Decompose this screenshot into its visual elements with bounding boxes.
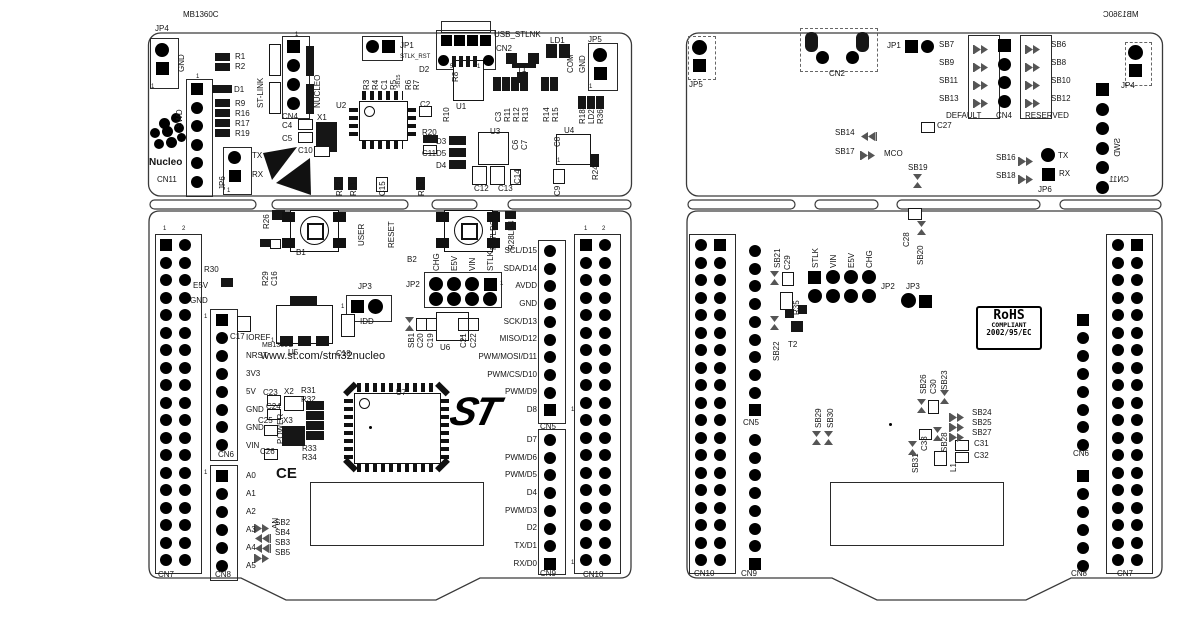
label-r17: R17	[235, 120, 250, 128]
component	[553, 169, 565, 184]
header-pin	[1112, 257, 1124, 269]
label-tx: TX	[252, 152, 262, 160]
label-gnd: GND	[246, 406, 264, 414]
component	[298, 132, 313, 143]
component	[541, 77, 549, 91]
header-pin	[1112, 309, 1124, 321]
breakaway-slot	[815, 200, 878, 209]
label-u6: U6	[440, 344, 450, 352]
label-r18: R18	[579, 109, 587, 124]
label-vin: VIN	[469, 258, 477, 271]
header-pin	[714, 379, 726, 391]
header-pin	[714, 449, 726, 461]
solder-bridge	[940, 389, 949, 410]
square-pad	[441, 35, 452, 46]
header-pin	[544, 245, 556, 257]
component	[306, 411, 324, 420]
board-title-front: MB1360C	[183, 11, 219, 19]
label-c17: C17	[230, 333, 245, 341]
round-pad	[846, 51, 859, 64]
label-r12: R12	[513, 107, 521, 122]
header-pin	[580, 309, 592, 321]
label-sb8: SB8	[1051, 59, 1066, 67]
round-pad	[366, 40, 379, 53]
header-pin	[544, 505, 556, 517]
component	[934, 451, 947, 466]
label-stlk: STLK	[487, 251, 495, 271]
label-cn4: CN4	[282, 113, 298, 121]
header-pin	[544, 316, 556, 328]
solder-bridge	[812, 430, 821, 451]
header-pin	[749, 369, 761, 381]
header-pin	[179, 537, 191, 549]
header-pin	[191, 102, 203, 114]
component	[221, 278, 233, 287]
component	[955, 452, 969, 463]
header-pin	[1077, 332, 1089, 344]
header-pin	[160, 257, 172, 269]
header-pin	[179, 257, 191, 269]
label-sb17: SB17	[835, 148, 855, 156]
label-r20: R20	[422, 129, 437, 137]
label-c7: C7	[521, 140, 529, 150]
pin1-square-pad	[544, 404, 556, 416]
label-c12: C12	[474, 185, 489, 193]
header-pin	[287, 97, 300, 110]
chip-u2	[349, 91, 416, 149]
pin1-square-pad	[1096, 83, 1109, 96]
label-vin: VIN	[246, 442, 259, 450]
rohs-badge: RoHSCOMPLIANT2002/95/EC	[976, 306, 1042, 350]
label-gnd: GND	[519, 300, 537, 308]
component	[908, 208, 922, 220]
label-c20: C20	[417, 333, 425, 348]
label-jp2: JP2	[406, 281, 420, 289]
round-pad	[429, 277, 443, 291]
round-pad	[465, 292, 479, 306]
component	[449, 148, 466, 157]
header-pin	[714, 292, 726, 304]
header-pin	[695, 257, 707, 269]
component	[237, 316, 251, 332]
header-pin	[1131, 467, 1143, 479]
header-pin	[1112, 274, 1124, 286]
breakaway-slot	[688, 200, 795, 209]
round-pad	[844, 289, 858, 303]
header-pin	[599, 379, 611, 391]
header-pin	[599, 414, 611, 426]
header-pin	[1112, 362, 1124, 374]
label-d5: D5	[436, 150, 446, 158]
connector-outline	[310, 482, 484, 546]
header-pin	[179, 502, 191, 514]
header-pin	[216, 332, 228, 344]
label-r29: R29	[262, 271, 270, 286]
label-sb1: SB1	[408, 333, 416, 348]
round-pad	[465, 277, 479, 291]
label-jp6: JP6	[219, 176, 227, 190]
solder-bridge	[860, 147, 877, 165]
label-c29: C29	[784, 255, 792, 270]
label-r34: R34	[302, 454, 317, 462]
header-pin	[695, 239, 707, 251]
label-r11: R11	[504, 108, 512, 122]
header-pin	[1112, 519, 1124, 531]
label-jp4: JP4	[155, 25, 169, 33]
label-x2: X2	[284, 388, 294, 396]
pin1-square-pad	[1077, 470, 1089, 482]
label-r30: R30	[204, 266, 219, 274]
label-c32: C32	[974, 452, 989, 460]
label-ioref: IOREF	[246, 334, 270, 342]
header-pin	[179, 519, 191, 531]
header-pin	[1077, 386, 1089, 398]
header-pin	[714, 414, 726, 426]
header-pin	[1077, 350, 1089, 362]
round-pad	[826, 289, 840, 303]
label-e5v: E5V	[848, 253, 856, 268]
label-1: 1	[151, 84, 154, 90]
header-pin	[544, 523, 556, 535]
label-d3: D3	[436, 138, 446, 146]
label-jp1: JP1	[887, 42, 901, 50]
header-pin	[160, 519, 172, 531]
header-pin	[160, 344, 172, 356]
label-c30: C30	[930, 379, 938, 394]
header-pin	[695, 327, 707, 339]
breakaway-slot	[150, 200, 256, 209]
header-pin	[714, 484, 726, 496]
header-pin	[1077, 488, 1089, 500]
component	[928, 400, 939, 414]
header-pin	[580, 432, 592, 444]
header-pin	[216, 524, 228, 536]
header-pin	[714, 362, 726, 374]
header-pin	[160, 397, 172, 409]
label-r23: R23	[418, 181, 426, 196]
solder-bridge	[913, 173, 922, 194]
label-cn2: CN2	[829, 70, 845, 78]
header-pin	[1131, 344, 1143, 356]
round-pad	[826, 270, 840, 284]
header-pin	[749, 434, 761, 446]
label-t1: T1	[517, 66, 526, 74]
round-pad	[844, 270, 858, 284]
label-c31: C31	[974, 440, 989, 448]
label-c4: C4	[282, 122, 292, 130]
header-pin	[216, 488, 228, 500]
header-pin	[1077, 368, 1089, 380]
label-ld2: LD2	[588, 109, 596, 124]
label-ld1: LD1	[550, 37, 565, 45]
header-pin	[599, 362, 611, 374]
header-pin	[216, 506, 228, 518]
label-x1: X1	[317, 114, 327, 122]
header-pin	[1112, 414, 1124, 426]
label-chg: CHG	[433, 253, 441, 271]
header-pin	[580, 274, 592, 286]
header-pin	[599, 309, 611, 321]
label-1: 1	[589, 84, 592, 90]
solder-bridge	[770, 270, 779, 291]
label-r22: R22	[336, 181, 344, 196]
label-an: AN	[272, 518, 280, 529]
header-pin	[580, 327, 592, 339]
header-pin	[695, 362, 707, 374]
header-pin	[695, 554, 707, 566]
website-url: www.st.com/stm32nucleo	[261, 351, 385, 362]
label-sb24: SB24	[972, 409, 992, 417]
header-pin	[544, 369, 556, 381]
pin1-square-pad	[216, 470, 228, 482]
header-pin	[695, 274, 707, 286]
label-reserved: RESERVED	[1025, 112, 1069, 120]
solder-bridge	[1018, 171, 1035, 189]
header-pin	[695, 449, 707, 461]
round-pad	[862, 270, 876, 284]
breakaway-slot	[1060, 200, 1161, 209]
label-r27ld3: R27LD3	[490, 221, 498, 250]
label-jp5: JP5	[588, 36, 602, 44]
label-sb13: SB13	[939, 95, 959, 103]
square-pad	[905, 40, 918, 53]
component	[298, 336, 311, 346]
label-a4: A4	[246, 544, 256, 552]
label-cn6: CN6	[1073, 450, 1089, 458]
header-pin	[287, 78, 300, 91]
header-pin	[160, 554, 172, 566]
label-u7: U7	[396, 389, 406, 397]
header-pin	[179, 309, 191, 321]
label-3v3: 3V3	[246, 370, 260, 378]
label-gnd: GND	[190, 297, 208, 305]
header-pin	[216, 350, 228, 362]
header-pin	[695, 519, 707, 531]
ce-mark: CE	[276, 466, 297, 481]
component	[290, 296, 317, 306]
header-pin	[695, 397, 707, 409]
label-sda-d14: SDA/D14	[504, 265, 537, 273]
component	[260, 239, 270, 247]
label-stlk: STLK	[812, 248, 820, 268]
component	[502, 77, 510, 91]
header-pin	[714, 309, 726, 321]
label-c5: C5	[282, 135, 292, 143]
header-pin	[749, 505, 761, 517]
label-jp6: JP6	[1038, 186, 1052, 194]
component	[921, 122, 935, 133]
label-1: 1	[571, 560, 574, 566]
label-c33: C33	[921, 436, 929, 451]
label-sb25: SB25	[972, 419, 992, 427]
square-pad	[454, 35, 465, 46]
round-pad	[808, 289, 822, 303]
solder-bridge	[824, 430, 833, 451]
label-1: 1	[557, 158, 560, 164]
header-pin	[695, 432, 707, 444]
component	[459, 56, 463, 67]
round-pad	[228, 151, 241, 164]
header-pin	[1112, 449, 1124, 461]
label-b2: B2	[407, 256, 417, 264]
component	[596, 96, 604, 109]
header-pin	[1077, 506, 1089, 518]
header-pin	[580, 379, 592, 391]
header-pin	[1077, 524, 1089, 536]
header-pin	[749, 298, 761, 310]
header-pin	[1112, 467, 1124, 479]
round-pad	[816, 51, 829, 64]
square-pad	[351, 300, 364, 313]
label-r10: R10	[443, 107, 451, 122]
square-pad	[808, 271, 821, 284]
header-pin	[1112, 239, 1124, 251]
header-pin	[749, 263, 761, 275]
header-pin	[599, 257, 611, 269]
square-pad	[467, 35, 478, 46]
label-vin: VIN	[830, 255, 838, 268]
component	[478, 132, 509, 165]
component	[520, 77, 528, 91]
header-pin	[714, 257, 726, 269]
header-pin	[160, 484, 172, 496]
header-pin	[714, 344, 726, 356]
header-pin	[695, 292, 707, 304]
component	[215, 53, 230, 61]
header-pin	[160, 432, 172, 444]
label-d7: D7	[527, 436, 537, 444]
label-r15: R15	[552, 107, 560, 122]
header-pin	[714, 274, 726, 286]
header-pin	[714, 519, 726, 531]
label-cn6: CN6	[218, 451, 234, 459]
header-pin	[599, 344, 611, 356]
component	[215, 109, 230, 117]
header-pin	[1112, 327, 1124, 339]
header-pin	[580, 414, 592, 426]
header-pin	[1112, 379, 1124, 391]
component	[341, 314, 355, 337]
header-pin	[580, 467, 592, 479]
label-jp3: JP3	[906, 283, 920, 291]
header-pin	[160, 449, 172, 461]
label-r21: R21	[350, 181, 358, 196]
header-pin	[1131, 554, 1143, 566]
label-a0: A0	[246, 472, 256, 480]
rohs-directive-text: 2002/95/EC	[978, 329, 1040, 337]
header-pin	[1112, 432, 1124, 444]
solder-bridge	[973, 41, 990, 59]
label-pwm-cs-d10: PWM/CS/D10	[487, 371, 537, 379]
header-pin	[160, 537, 172, 549]
label-1: 1	[477, 64, 480, 70]
header-pin	[160, 502, 172, 514]
label-e5v: E5V	[193, 282, 208, 290]
label-sb31: SB31	[912, 453, 920, 473]
label-c8: C8	[554, 137, 562, 147]
header-pin	[599, 554, 611, 566]
header-pin	[1112, 344, 1124, 356]
solder-bridge	[917, 220, 926, 241]
component	[269, 82, 281, 114]
header-pin	[179, 327, 191, 339]
label-sb10: SB10	[1051, 77, 1071, 85]
header-pin	[160, 327, 172, 339]
header-pin	[179, 432, 191, 444]
solder-bridge	[1025, 59, 1042, 77]
fiducial-dot	[369, 426, 372, 429]
label-jp2: JP2	[881, 283, 895, 291]
header-pin	[1131, 502, 1143, 514]
label-sb16: SB16	[996, 154, 1016, 162]
pin1-square-pad	[191, 83, 203, 95]
header-pin	[695, 467, 707, 479]
pin1-square-pad	[749, 404, 761, 416]
header-pin	[216, 386, 228, 398]
label-scl-d15: SCL/D15	[505, 247, 537, 255]
label-d1: D1	[234, 86, 244, 94]
label-r24: R24	[592, 165, 600, 180]
header-pin	[179, 467, 191, 479]
component	[782, 272, 794, 286]
header-pin	[1096, 181, 1109, 194]
label-c1: C1	[381, 80, 389, 90]
label-e5v: E5V	[451, 256, 459, 271]
label-pwm-d9: PWM/D9	[505, 388, 537, 396]
header-pin	[599, 502, 611, 514]
header-pin	[599, 467, 611, 479]
header-pin	[544, 263, 556, 275]
header-pin	[1112, 554, 1124, 566]
label-u1: U1	[456, 103, 466, 111]
label-cn11: CN11	[1109, 176, 1129, 184]
solder-bridge	[860, 128, 877, 146]
header-pin	[695, 414, 707, 426]
label-stlk_rst: STLK_RST	[400, 54, 430, 60]
round-pad	[155, 43, 169, 57]
header-pin	[599, 519, 611, 531]
header-pin	[580, 484, 592, 496]
header-pin	[580, 519, 592, 531]
label-gnd: GND	[246, 424, 264, 432]
header-pin	[1131, 537, 1143, 549]
label-sb30: SB30	[827, 408, 835, 428]
pin1-square-pad	[998, 39, 1011, 52]
label-t2: T2	[788, 341, 797, 349]
label-r8: R8	[452, 72, 460, 82]
solder-bridge	[973, 77, 990, 95]
header-pin	[1112, 397, 1124, 409]
label-c23: C23	[263, 389, 278, 397]
header-pin	[695, 484, 707, 496]
header-pin	[216, 368, 228, 380]
square-pad	[229, 170, 241, 182]
label-sb19: SB19	[908, 164, 928, 172]
label-r4: R4	[372, 80, 380, 90]
header-pin	[1077, 404, 1089, 416]
component	[505, 211, 516, 219]
header-pin	[1131, 379, 1143, 391]
label-c3: C3	[495, 112, 503, 122]
label-r31: R31	[301, 387, 316, 395]
label-c28: C28	[903, 232, 911, 247]
label-b1: B1	[296, 249, 306, 257]
component	[466, 56, 470, 67]
component	[550, 77, 558, 91]
label-d2: D2	[419, 66, 429, 74]
label-sck-d13: SCK/D13	[504, 318, 537, 326]
label-c19: C19	[427, 333, 435, 348]
